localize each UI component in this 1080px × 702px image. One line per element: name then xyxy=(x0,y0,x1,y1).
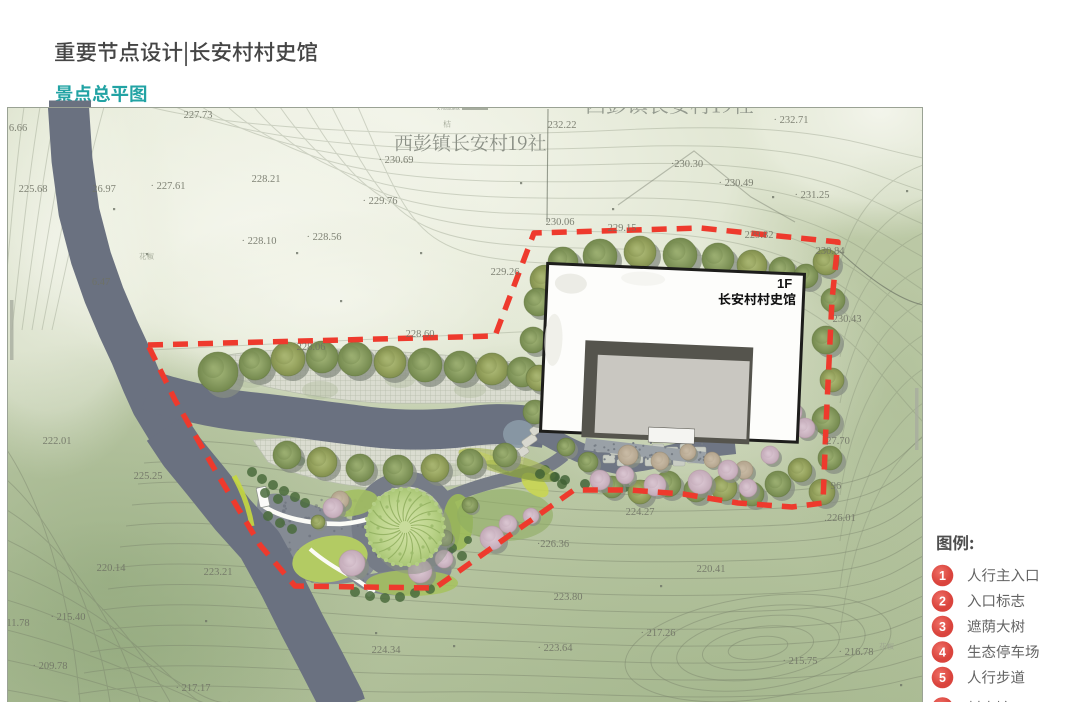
svg-text:27.70: 27.70 xyxy=(826,436,850,447)
svg-text:232.22: 232.22 xyxy=(548,120,577,131)
svg-text:228.06: 228.06 xyxy=(297,342,326,353)
svg-text:225.68: 225.68 xyxy=(19,184,48,195)
svg-text:6.47: 6.47 xyxy=(92,277,110,288)
svg-text:5: 5 xyxy=(939,671,946,685)
svg-text:· 209.78: · 209.78 xyxy=(33,661,68,672)
svg-text:230.84: 230.84 xyxy=(816,246,846,257)
svg-text:4: 4 xyxy=(939,646,946,660)
svg-text:.226.01: .226.01 xyxy=(824,513,856,524)
svg-text:11.78: 11.78 xyxy=(6,618,29,629)
svg-text:· 215.75: · 215.75 xyxy=(783,656,818,667)
svg-text:2: 2 xyxy=(939,595,946,609)
svg-text:96: 96 xyxy=(831,481,842,492)
svg-text:230.06: 230.06 xyxy=(546,217,575,228)
svg-text:229.26: 229.26 xyxy=(491,267,520,278)
svg-text:229.82: 229.82 xyxy=(745,230,774,241)
svg-text:·230.30: ·230.30 xyxy=(671,159,703,170)
svg-text:· 228.10: · 228.10 xyxy=(242,236,277,247)
svg-text:228.60: 228.60 xyxy=(406,329,435,340)
svg-text:· 217.26: · 217.26 xyxy=(641,628,676,639)
svg-text:· 215.40: · 215.40 xyxy=(51,612,86,623)
svg-text:6.66: 6.66 xyxy=(9,123,27,134)
svg-text:· 230.69: · 230.69 xyxy=(379,155,414,166)
svg-text:1F: 1F xyxy=(777,276,792,291)
svg-text:224.27: 224.27 xyxy=(626,507,655,518)
svg-text:· 217.17: · 217.17 xyxy=(176,683,211,694)
svg-text:222.01: 222.01 xyxy=(43,436,72,447)
svg-text:· 229.76: · 229.76 xyxy=(363,196,398,207)
svg-text:26.97: 26.97 xyxy=(92,184,116,195)
svg-text:223.21: 223.21 xyxy=(204,567,233,578)
svg-text:230.43: 230.43 xyxy=(833,314,862,325)
svg-text:· 230.49: · 230.49 xyxy=(719,178,754,189)
svg-text:· 216.78: · 216.78 xyxy=(839,647,874,658)
svg-text:1: 1 xyxy=(939,569,946,583)
svg-text:· 231.25: · 231.25 xyxy=(795,190,830,201)
svg-text:220.41: 220.41 xyxy=(697,564,726,575)
svg-text:227.73: 227.73 xyxy=(184,110,213,121)
svg-text:· 223.64: · 223.64 xyxy=(538,643,574,654)
svg-text:· 232.71: · 232.71 xyxy=(774,115,809,126)
svg-text:224.34: 224.34 xyxy=(372,645,402,656)
svg-text:225.25: 225.25 xyxy=(134,471,163,482)
svg-text:229.15: 229.15 xyxy=(608,223,637,234)
svg-text:· 228.56: · 228.56 xyxy=(307,232,342,243)
svg-text:223.80: 223.80 xyxy=(554,592,583,603)
svg-text:· 227.61: · 227.61 xyxy=(151,181,186,192)
svg-text:·226.36: ·226.36 xyxy=(537,539,569,550)
svg-text:3: 3 xyxy=(939,620,946,634)
svg-text:228.21: 228.21 xyxy=(252,174,281,185)
svg-text:220.14: 220.14 xyxy=(97,563,127,574)
